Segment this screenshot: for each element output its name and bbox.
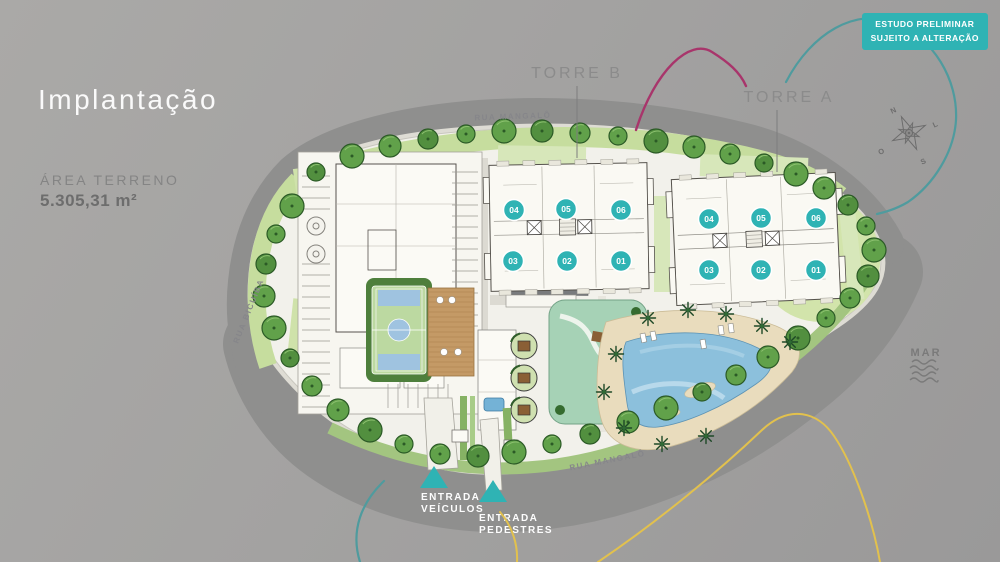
tree-icon xyxy=(644,129,668,153)
torre-a-unit-05: 05 xyxy=(751,208,772,229)
deck-table xyxy=(441,349,448,356)
torre-a-unit-03: 03 xyxy=(699,260,720,281)
palm-tree-icon xyxy=(719,307,734,322)
svg-text:01: 01 xyxy=(616,256,626,266)
compass-n: N xyxy=(889,105,898,115)
tree-icon xyxy=(857,217,875,235)
torre-b-label: TORRE B xyxy=(531,65,623,82)
tree-icon xyxy=(543,435,561,453)
tree-icon xyxy=(492,119,516,143)
torre-b-unit-06: 06 xyxy=(611,200,632,221)
tree-icon xyxy=(838,195,858,215)
tree-icon xyxy=(256,254,276,274)
torre-a-unit-06: 06 xyxy=(806,208,827,229)
svg-text:06: 06 xyxy=(616,205,626,215)
tree-icon xyxy=(457,125,475,143)
tree-icon xyxy=(358,418,382,442)
palm-tree-icon xyxy=(755,319,770,334)
torre-b-unit-05: 05 xyxy=(556,199,577,220)
svg-text:03: 03 xyxy=(704,265,714,275)
compass-s: S xyxy=(919,156,927,166)
court-key-top xyxy=(378,290,420,306)
pool-lounger xyxy=(718,325,724,335)
tree-icon xyxy=(683,136,705,158)
turnaround-2 xyxy=(307,245,325,263)
tree-icon xyxy=(784,162,808,186)
sea-label: MAR xyxy=(910,347,941,359)
svg-text:05: 05 xyxy=(756,213,766,223)
tree-icon xyxy=(570,123,590,143)
cabana-1 xyxy=(511,333,537,359)
compass-rose: N L O S xyxy=(877,105,940,166)
pedestrian-entrance-line1: ENTRADA xyxy=(479,513,538,524)
svg-text:04: 04 xyxy=(509,205,519,215)
svg-text:05: 05 xyxy=(561,204,571,214)
cabana-3 xyxy=(511,397,537,423)
court-zone xyxy=(366,278,474,382)
tree-icon xyxy=(307,163,325,181)
palm-tree-icon xyxy=(609,347,624,362)
palm-tree-icon xyxy=(597,385,612,400)
tree-icon xyxy=(726,365,746,385)
area-block: ÁREA TERRENO 5.305,31 m² xyxy=(40,172,179,211)
torre-a-unit-02: 02 xyxy=(751,260,772,281)
gatehouse-1 xyxy=(452,430,468,442)
torre-b-unit-01: 01 xyxy=(611,251,632,272)
area-value: 5.305,31 m² xyxy=(40,191,179,211)
pool-lounger xyxy=(728,323,734,333)
hedge-strip-1 xyxy=(460,396,467,460)
svg-text:06: 06 xyxy=(811,213,821,223)
tree-icon xyxy=(755,154,773,172)
torre-b-unit-04: 04 xyxy=(504,200,525,221)
tree-icon xyxy=(395,435,413,453)
torre-b-unit-02: 02 xyxy=(557,251,578,272)
tree-icon xyxy=(857,265,879,287)
palm-tree-icon xyxy=(655,437,670,452)
tree-icon xyxy=(531,120,553,142)
tree-icon xyxy=(430,444,450,464)
turnaround-1 xyxy=(307,217,325,235)
svg-text:04: 04 xyxy=(704,214,714,224)
tree-icon xyxy=(340,144,364,168)
compass-o: O xyxy=(877,146,886,157)
site-plan-page: 040506030201040506030201 TORRE B TORRE A… xyxy=(0,0,1000,562)
disclaimer-badge: ESTUDO PRELIMINAR SUJEITO A ALTERAÇÃO xyxy=(862,13,988,50)
tree-icon xyxy=(720,144,740,164)
compass-star-icon xyxy=(885,109,933,157)
palm-tree-icon xyxy=(641,311,656,326)
svg-text:02: 02 xyxy=(756,265,766,275)
tree-icon xyxy=(467,445,489,467)
pedestrian-entrance-line2: PEDESTRES xyxy=(479,525,553,536)
tree-icon xyxy=(281,349,299,367)
tree-icon xyxy=(280,194,304,218)
tree-icon xyxy=(327,399,349,421)
play-bush-1 xyxy=(555,405,565,415)
tree-icon xyxy=(502,440,526,464)
torre-a-unit-04: 04 xyxy=(699,209,720,230)
spa-pool xyxy=(484,398,504,411)
tree-icon xyxy=(262,316,286,340)
svg-text:01: 01 xyxy=(811,265,821,275)
compass-l: L xyxy=(931,119,939,129)
area-label: ÁREA TERRENO xyxy=(40,172,179,188)
page-title: Implantação xyxy=(38,84,218,116)
tree-icon xyxy=(267,225,285,243)
disclaimer-line-2: SUJEITO A ALTERAÇÃO xyxy=(871,32,979,46)
torre-b-unit-03: 03 xyxy=(503,251,524,272)
tree-icon xyxy=(418,129,438,149)
palm-tree-icon xyxy=(699,429,714,444)
svg-text:02: 02 xyxy=(562,256,572,266)
cabana-2 xyxy=(511,365,537,391)
deck-table xyxy=(437,297,444,304)
tree-icon xyxy=(840,288,860,308)
torre-a-label: TORRE A xyxy=(744,89,835,106)
tree-icon xyxy=(813,177,835,199)
deck-table xyxy=(455,349,462,356)
tree-icon xyxy=(817,309,835,327)
title-block: Implantação xyxy=(38,84,218,116)
palm-tree-icon xyxy=(681,303,696,318)
disclaimer-line-1: ESTUDO PRELIMINAR xyxy=(871,18,979,32)
palm-tree-icon xyxy=(783,335,798,350)
tree-icon xyxy=(654,396,678,420)
torre-a-unit-01: 01 xyxy=(806,260,827,281)
vehicle-entrance-line2: VEÍCULOS xyxy=(421,502,484,515)
cabanas xyxy=(511,333,537,423)
svg-text:03: 03 xyxy=(508,256,518,266)
vehicle-entrance-line1: ENTRADA xyxy=(421,492,480,503)
deck-table xyxy=(449,297,456,304)
waves-icon xyxy=(910,360,938,382)
sea-marker: MAR xyxy=(910,347,942,382)
tree-icon xyxy=(693,383,711,401)
palm-tree-icon xyxy=(617,421,632,436)
tree-icon xyxy=(862,238,886,262)
tree-icon xyxy=(757,346,779,368)
court-key-bottom xyxy=(378,354,420,370)
tree-icon xyxy=(617,411,639,433)
tree-icon xyxy=(302,376,322,396)
tree-icon xyxy=(580,424,600,444)
torre-b-building xyxy=(483,159,655,296)
tree-icon xyxy=(609,127,627,145)
tree-icon xyxy=(379,135,401,157)
